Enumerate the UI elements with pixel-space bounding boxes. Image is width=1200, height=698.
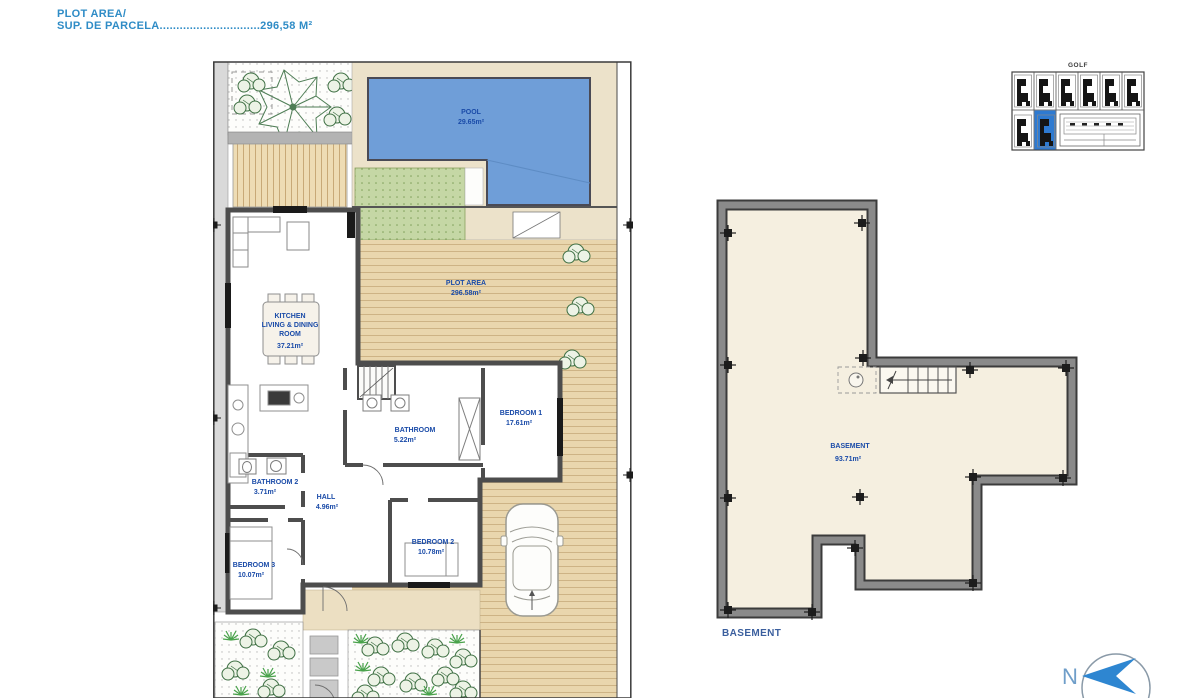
north-arrow [1082, 658, 1136, 694]
dining-table [263, 294, 319, 364]
hall-label: HALL [317, 494, 336, 501]
site-plan-title: GOLF [1068, 62, 1088, 69]
bedroom2-label: BEDROOM 2 [412, 539, 455, 546]
stepping-tiles [310, 636, 338, 698]
main-floor-plan: POOL 29.65m² PLOT AREA 296.58m² [213, 55, 633, 698]
basement-area: 93.71m² [835, 456, 862, 463]
north-label: N [1062, 664, 1078, 689]
basement-plan: BASEMENT 93.71m² [690, 195, 1090, 625]
bathroom-label: BATHROOM [395, 427, 436, 434]
pool-area-label: 29.65m² [458, 119, 485, 126]
kitchen-label-2: LIVING & DINING [262, 322, 319, 329]
right-walkway [617, 62, 631, 698]
garden-bottom-center [348, 630, 480, 698]
pool-label: POOL [461, 109, 482, 116]
garden-top [228, 62, 358, 207]
plot-area-header-line2: SUP. DE PARCELA.........................… [57, 20, 312, 32]
kitchen-label-1: KITCHEN [274, 313, 305, 320]
bathroom2-label: BATHROOM 2 [252, 479, 299, 486]
bedroom1-area: 17.61m² [506, 420, 533, 427]
bathroom2-area: 3.71m² [254, 489, 277, 496]
basement-outline [722, 205, 1072, 613]
front-deck [233, 144, 347, 207]
basement-caption: BASEMENT [722, 628, 781, 639]
garden-wall [228, 132, 358, 144]
bedroom1-label: BEDROOM 1 [500, 410, 543, 417]
pool-side-path [465, 168, 483, 205]
pool-ramp [513, 212, 560, 238]
hall-area: 4.96m² [316, 504, 339, 511]
kitchen-area: 37.21m² [277, 343, 304, 350]
lawn [355, 168, 465, 240]
plot-area-label: PLOT AREA [446, 280, 486, 287]
bedroom3-label: BEDROOM 3 [233, 562, 276, 569]
car-icon [501, 504, 563, 616]
stairs [358, 366, 395, 399]
kitchen-label-3: ROOM [279, 331, 301, 338]
site-plan-amenity [1060, 114, 1140, 146]
site-plan: GOLF [1008, 58, 1148, 153]
bedroom2-area: 10.78m² [418, 549, 445, 556]
bedroom3-area: 10.07m² [238, 572, 265, 579]
bathroom-area: 5.22m² [394, 437, 417, 444]
garden-bottom-left [215, 622, 303, 698]
plot-area-header-line1: PLOT AREA/ [57, 8, 312, 20]
entry-path [303, 590, 480, 630]
plot-area-header: PLOT AREA/ SUP. DE PARCELA..............… [57, 8, 312, 32]
basement-label: BASEMENT [830, 443, 870, 450]
plot-area-value: 296.58m² [451, 290, 482, 297]
north-arrow-icon: N [1058, 630, 1188, 698]
